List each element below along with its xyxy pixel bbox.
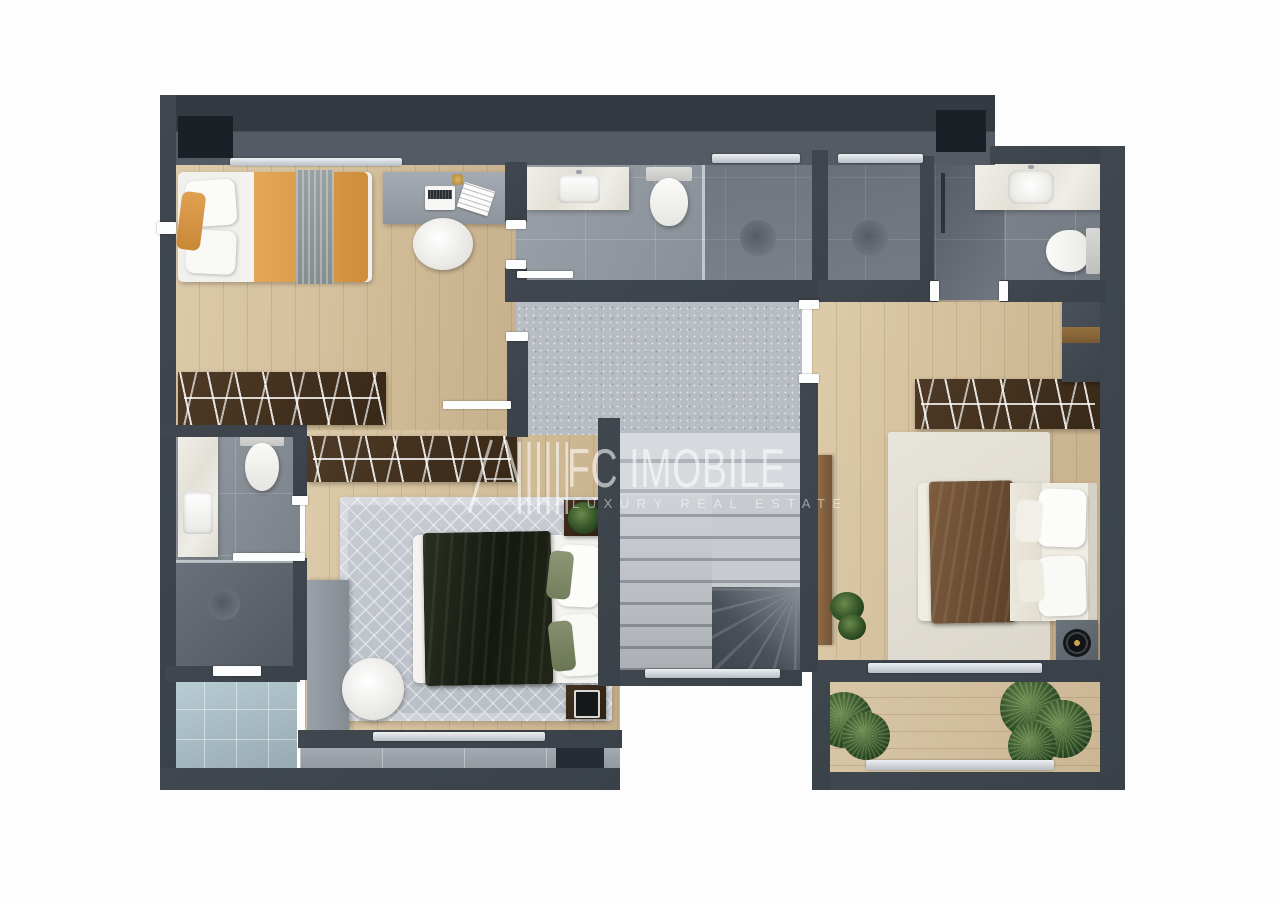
bedmaster-cushion-1 — [1015, 499, 1044, 543]
balcony-glass-railing — [866, 760, 1054, 770]
window-bedroom1-top — [230, 158, 402, 166]
door-bedroom1-leftwall — [157, 222, 176, 234]
dresser-bedroom2 — [307, 580, 349, 730]
window-bedroom2-bottom — [373, 732, 545, 741]
speaker-nightstand-master — [1063, 629, 1091, 657]
wall-bathleft-right-upper — [293, 428, 307, 498]
door-master-jamb-top — [799, 300, 819, 309]
wardrobe-hangers-master — [915, 379, 1101, 429]
shower1-drain — [740, 220, 776, 256]
chair-bedroom2 — [342, 658, 404, 720]
wall-bath1-left-upper — [505, 162, 527, 222]
window-shower2 — [838, 154, 923, 163]
floor-plan-render: FC IMOBILE LUXURY REAL ESTATE — [0, 0, 1280, 905]
wall-bathleft-right-lower — [293, 558, 307, 680]
wall-left — [160, 95, 176, 790]
console-master-left — [817, 455, 832, 645]
toilet-bath1-bowl — [650, 178, 688, 226]
shower-bathleft-drain — [208, 588, 240, 620]
window-shower1 — [712, 154, 800, 163]
bed2-dark-blanket — [423, 531, 554, 686]
door-master-jamb-bottom — [799, 374, 819, 383]
faucet-bathright — [1028, 165, 1034, 169]
device-nightstand-bed2 — [574, 690, 600, 718]
wall-hall-landing — [507, 340, 528, 437]
wall-shaft-right — [936, 110, 986, 152]
wall-bathright-bottom-left — [818, 280, 938, 302]
wardrobe-hangers-2 — [307, 436, 517, 482]
bed2-green-pillow-1 — [546, 550, 575, 600]
ledge-dark-unit — [556, 747, 604, 770]
stairs-winder-dark — [712, 587, 800, 678]
door-hallway-landing — [506, 332, 528, 341]
wall-stairs-left — [598, 418, 620, 686]
towel-rail-bath1 — [517, 271, 573, 278]
window-bathleft-bottom — [213, 666, 261, 676]
faucet-bath1 — [576, 170, 582, 174]
wardrobe-hangers-1 — [178, 372, 386, 425]
bed-single-throw-blanket — [296, 170, 334, 284]
desk-chair — [413, 218, 473, 270]
wall-bath1-bottom — [505, 280, 818, 302]
toilet-bathright-tank — [1086, 228, 1100, 274]
wall-right — [1100, 146, 1125, 790]
wall-bathright-bottom-right — [1000, 280, 1105, 302]
bedmaster-pillow-1 — [1037, 488, 1087, 548]
desk-decor — [452, 174, 463, 185]
wall-bathleft-top — [160, 425, 307, 437]
bedmaster-headboard — [1088, 483, 1097, 621]
wall-bottom-left — [160, 768, 620, 790]
bedmaster-cushion-2 — [1017, 559, 1046, 603]
stairs-left-flight — [618, 495, 712, 678]
window-stairs-bottom — [645, 669, 780, 678]
door-bath1-jamb-top — [506, 220, 526, 229]
door-bathright-jamb-right — [999, 281, 1008, 301]
stairs-upper-steps — [618, 433, 800, 495]
bed2-green-pillow-2 — [547, 620, 576, 672]
door-bathright-jamb-left — [930, 281, 939, 301]
hallway-bench-rail — [443, 401, 511, 409]
plant-master-floor-2 — [838, 614, 866, 640]
wall-shaft-left — [178, 116, 233, 158]
shower-pole-bathright — [941, 173, 945, 233]
sink-bathleft — [183, 492, 213, 534]
stairs-right-flight — [712, 495, 800, 587]
balcony-plant-left-2 — [842, 712, 890, 760]
plant-nightstand-bed2 — [568, 502, 600, 534]
sink-bathright — [1008, 170, 1054, 204]
sliding-door-master-balcony — [868, 663, 1042, 673]
shower2-drain — [852, 220, 888, 256]
floor-stair-landing — [516, 298, 802, 435]
bedmaster-brown-blanket — [929, 480, 1015, 623]
bed-single-sheet-band — [240, 172, 254, 282]
toilet-bathleft-bowl — [245, 443, 279, 491]
bedmaster-pillow-2 — [1037, 555, 1087, 617]
sink-bath1 — [558, 175, 600, 203]
laptop-keyboard — [428, 190, 452, 199]
shower-door-handle-left — [233, 553, 305, 561]
toilet-bathright-bowl — [1046, 230, 1090, 272]
wall-master-left — [800, 382, 818, 672]
floor-terrace-left — [172, 678, 297, 770]
wall-balcony-left — [812, 660, 830, 790]
door-bathleft — [292, 496, 308, 505]
cabinet-master-wood-shelf — [1062, 327, 1100, 343]
wall-balcony-bottom — [812, 772, 1105, 790]
door-bath1-jamb-bottom — [506, 260, 526, 269]
